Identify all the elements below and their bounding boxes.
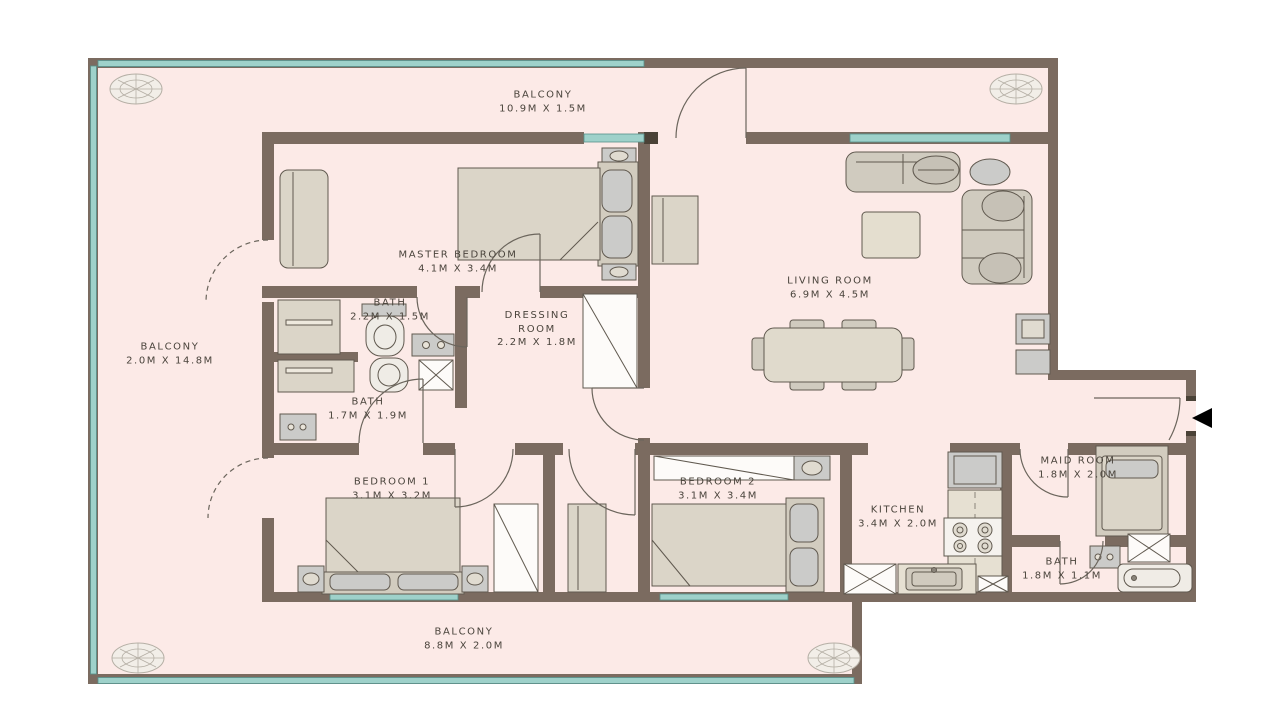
bath-sink <box>280 414 316 440</box>
room-name: KITCHEN <box>858 504 938 518</box>
room-label-balcony-bottom: BALCONY 8.8M x 2.0M <box>424 626 504 653</box>
stove <box>944 518 1002 556</box>
tv-unit <box>1016 350 1050 374</box>
living-cabinet <box>652 196 698 264</box>
corner-plant-icon <box>110 74 162 104</box>
room-size: 8.8M x 2.0M <box>424 639 504 653</box>
room-label-bath-maid: BATH 1.8M x 1.1M <box>1022 556 1102 583</box>
master-dresser <box>280 170 328 268</box>
dining-table <box>764 328 902 382</box>
room-name: DRESSING ROOM <box>488 309 586 336</box>
room-size: 1.8M x 1.1M <box>1022 569 1102 583</box>
room-name: LIVING ROOM <box>787 275 873 289</box>
bed1-pillow <box>398 574 458 590</box>
corner-plant-icon <box>808 643 860 673</box>
master-window <box>584 134 644 142</box>
room-size: 3.1M x 3.4M <box>678 489 758 503</box>
dressing-room-furniture <box>583 294 637 388</box>
bedroom1-window <box>330 594 458 600</box>
room-size: 2.2M x 1.5M <box>350 310 430 324</box>
room-label-bedroom-2: BEDROOM 2 3.1M x 3.4M <box>678 476 758 503</box>
room-label-bath-master: BATH 2.2M x 1.5M <box>350 297 430 324</box>
room-label-maid-room: MAID ROOM 1.8M x 2.0M <box>1038 455 1118 482</box>
balcony-bottom-glass <box>98 678 854 684</box>
room-label-balcony-left: BALCONY 2.0M x 14.8M <box>126 341 214 368</box>
bath-cabinet <box>278 360 354 392</box>
toilet <box>370 358 408 392</box>
room-name: BEDROOM 1 <box>352 476 432 490</box>
sofa-plant <box>979 253 1021 283</box>
room-label-bedroom-1: BEDROOM 1 3.1M x 3.2M <box>352 476 432 503</box>
side-table <box>970 159 1010 185</box>
room-label-bath-2: BATH 1.7M x 1.9M <box>328 396 408 423</box>
bed2-mattress <box>652 504 786 586</box>
bathtub <box>1118 564 1192 592</box>
master-bed <box>458 168 600 260</box>
hall-closet <box>568 504 606 592</box>
fridge <box>948 452 1002 488</box>
room-size: 2.2M x 1.8M <box>488 336 586 350</box>
room-label-balcony-top: BALCONY 10.9M x 1.5M <box>499 89 587 116</box>
room-size: 10.9M x 1.5M <box>499 102 587 116</box>
bed1-mattress <box>326 498 460 574</box>
room-label-kitchen: KITCHEN 3.4M x 2.0M <box>858 504 938 531</box>
master-pillow <box>602 216 632 258</box>
closet-cabinet <box>568 504 606 592</box>
room-name: BALCONY <box>126 341 214 355</box>
room-label-living-room: LIVING ROOM 6.9M x 4.5M <box>787 275 873 302</box>
room-name: MAID ROOM <box>1038 455 1118 469</box>
sofa-plant <box>982 191 1024 221</box>
room-name: BATH <box>328 396 408 410</box>
bath-sink <box>412 334 454 356</box>
master-pillow <box>602 170 632 212</box>
balcony-left-glass <box>91 66 97 674</box>
living-window <box>850 134 1010 142</box>
bed2-pillow <box>790 548 818 586</box>
room-size: 6.9M x 4.5M <box>787 288 873 302</box>
bed1-pillow <box>330 574 390 590</box>
room-label-master-bedroom: MASTER BEDROOM 4.1M x 3.4M <box>399 249 518 276</box>
room-label-dressing-room: DRESSING ROOM 2.2M x 1.8M <box>488 309 586 350</box>
corner-plant-icon <box>990 74 1042 104</box>
balcony-top-glass <box>98 61 644 67</box>
bedroom2-window <box>660 594 788 600</box>
room-size: 1.7M x 1.9M <box>328 409 408 423</box>
bedroom1-furniture <box>298 498 538 594</box>
bed2-pillow <box>790 504 818 542</box>
room-size: 1.8M x 2.0M <box>1038 468 1118 482</box>
room-name: BALCONY <box>499 89 587 103</box>
room-name: BATH <box>350 297 430 311</box>
room-size: 2.0M x 14.8M <box>126 354 214 368</box>
room-size: 4.1M x 3.4M <box>399 262 518 276</box>
corner-plant-icon <box>112 643 164 673</box>
room-size: 3.4M x 2.0M <box>858 517 938 531</box>
room-name: MASTER BEDROOM <box>399 249 518 263</box>
room-name: BATH <box>1022 556 1102 570</box>
floor-plan: BALCONY 10.9M x 1.5M BALCONY 2.0M x 14.8… <box>0 0 1280 720</box>
room-size: 3.1M x 3.2M <box>352 489 432 503</box>
coffee-table <box>862 212 920 258</box>
room-name: BEDROOM 2 <box>678 476 758 490</box>
bath-vanity <box>278 300 340 354</box>
room-name: BALCONY <box>424 626 504 640</box>
